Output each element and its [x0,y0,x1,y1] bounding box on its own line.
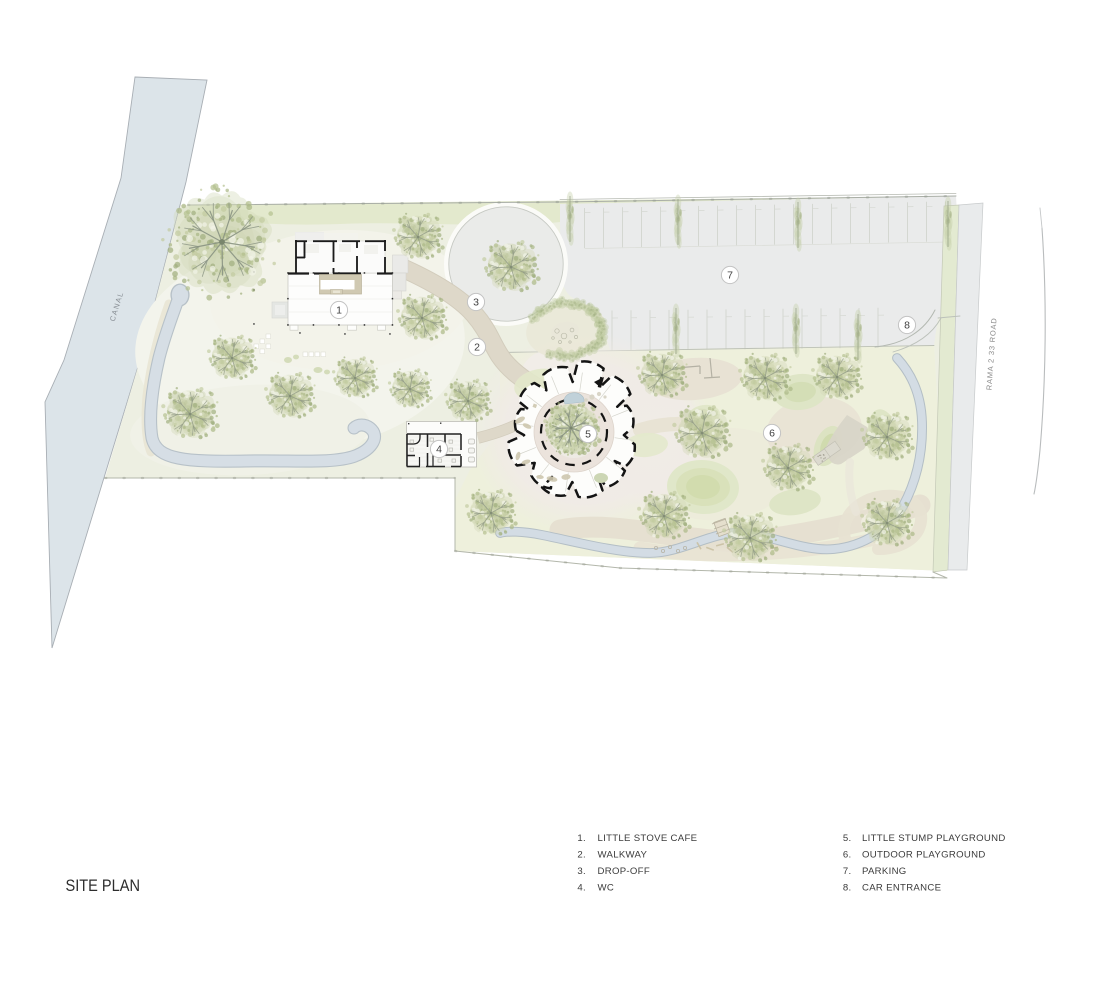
svg-text:CAR ENTRANCE: CAR ENTRANCE [862,883,941,894]
svg-text:PARKING: PARKING [862,866,907,877]
svg-text:4.: 4. [577,883,586,894]
svg-text:8.: 8. [843,883,852,894]
svg-text:RAMA 2 33 ROAD: RAMA 2 33 ROAD [984,317,998,390]
svg-text:6: 6 [769,428,775,440]
svg-text:SITE PLAN: SITE PLAN [66,877,141,895]
svg-text:2: 2 [474,342,480,354]
svg-text:3: 3 [473,297,479,309]
svg-text:1.: 1. [577,833,586,844]
svg-text:8: 8 [904,320,910,332]
svg-text:5.: 5. [843,833,852,844]
svg-text:7: 7 [727,270,733,282]
svg-text:4: 4 [436,444,442,456]
svg-text:7.: 7. [843,866,852,877]
svg-text:LITTLE STOVE CAFE: LITTLE STOVE CAFE [598,833,698,844]
svg-text:OUTDOOR PLAYGROUND: OUTDOOR PLAYGROUND [862,850,986,861]
svg-text:1: 1 [336,305,342,317]
svg-text:DROP-OFF: DROP-OFF [598,866,651,877]
svg-text:5: 5 [585,429,591,441]
svg-text:3.: 3. [577,866,586,877]
svg-text:WC: WC [598,883,615,894]
svg-text:6.: 6. [843,850,852,861]
svg-text:2.: 2. [577,850,586,861]
svg-text:LITTLE STUMP PLAYGROUND: LITTLE STUMP PLAYGROUND [862,833,1006,844]
svg-text:WALKWAY: WALKWAY [598,850,648,861]
